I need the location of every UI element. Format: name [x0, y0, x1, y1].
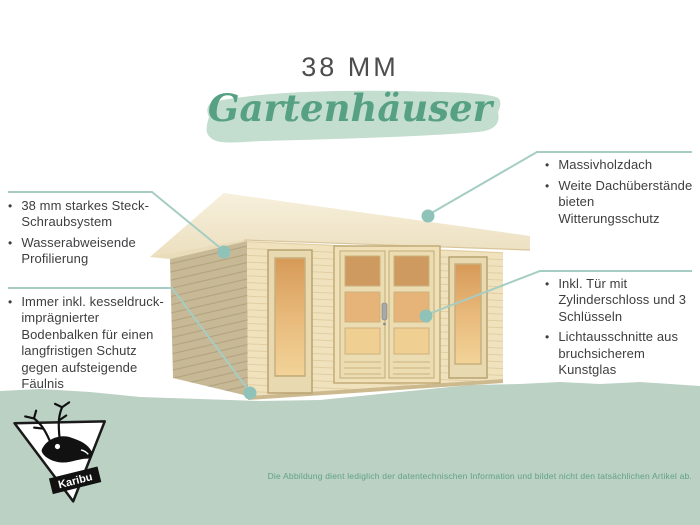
size-title: 38 MM [0, 52, 700, 83]
callout-text: Inkl. Tür mit Zylinderschloss und 3 Schl… [558, 276, 700, 325]
bullet-icon: • [545, 178, 549, 227]
callout-text: Massivholzdach [558, 157, 652, 174]
callout-text: Lichtausschnitte aus bruchsicherem Kunst… [558, 329, 700, 378]
green-ground-band [0, 382, 700, 525]
callout-item: • Inkl. Tür mit Zylinderschloss und 3 Sc… [545, 276, 700, 325]
bullet-icon: • [8, 294, 12, 392]
callout-item: • Massivholzdach [545, 157, 697, 174]
infographic-canvas: Karibu 38 MM Gartenhäuser • 38 mm starke… [0, 0, 700, 525]
callout-right-top: • Massivholzdach • Weite Dachüberstände … [545, 157, 697, 231]
callout-text: Wasserabweisende Profilierung [21, 235, 154, 268]
bullet-icon: • [545, 329, 549, 378]
callout-text: 38 mm starkes Steck-Schraubsystem [21, 198, 154, 231]
disclaimer-text: Die Abbildung dient lediglich der datent… [268, 471, 692, 481]
callout-text: Weite Dachüberstände bieten Witterungssc… [558, 178, 697, 227]
callout-left-bottom: • Immer inkl. kesseldruck-imprägnierter … [8, 294, 170, 396]
right-window [449, 257, 487, 378]
bullet-icon: • [545, 157, 549, 174]
callout-text: Immer inkl. kesseldruck-imprägnierter Bo… [21, 294, 170, 392]
callout-right-bottom: • Inkl. Tür mit Zylinderschloss und 3 Sc… [545, 276, 700, 382]
left-window [268, 250, 312, 393]
callout-dot [420, 310, 433, 323]
callout-item: • Weite Dachüberstände bieten Witterungs… [545, 178, 697, 227]
bullet-icon: • [545, 276, 549, 325]
bullet-icon: • [8, 198, 12, 231]
callout-item: • Wasserabweisende Profilierung [8, 235, 154, 268]
callout-item: • 38 mm starkes Steck-Schraubsystem [8, 198, 154, 231]
bullet-icon: • [8, 235, 12, 268]
callout-dot [422, 210, 435, 223]
callout-item: • Lichtausschnitte aus bruchsicherem Kun… [545, 329, 700, 378]
callout-item: • Immer inkl. kesseldruck-imprägnierter … [8, 294, 170, 392]
callout-left-top: • 38 mm starkes Steck-Schraubsystem • Wa… [8, 198, 154, 272]
callout-dot [244, 387, 257, 400]
callout-dot [218, 246, 231, 259]
category-script-title: Gartenhäuser [0, 86, 700, 130]
